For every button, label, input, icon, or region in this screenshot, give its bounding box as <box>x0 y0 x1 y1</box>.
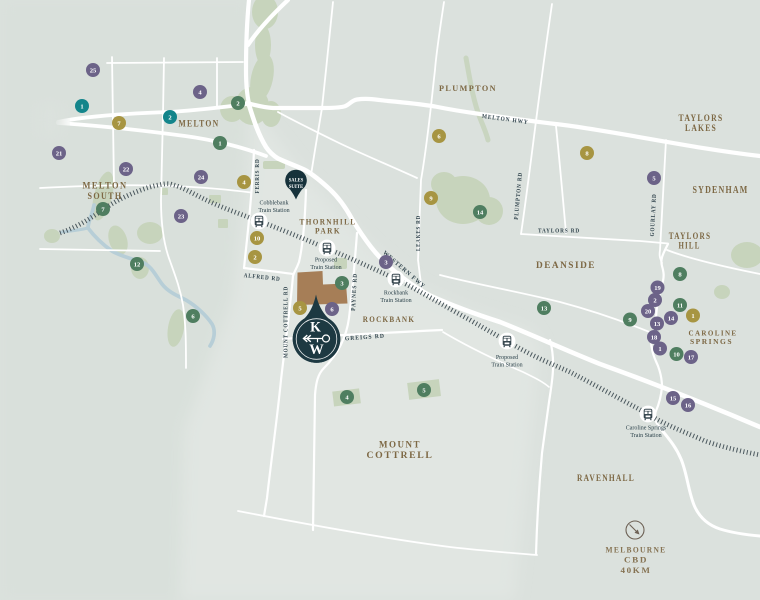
svg-text:Caroline Springs: Caroline Springs <box>626 426 667 432</box>
svg-text:40KM: 40KM <box>621 565 652 575</box>
svg-text:TAYLORS RD: TAYLORS RD <box>538 229 580 235</box>
svg-text:SYDENHAM: SYDENHAM <box>693 185 749 196</box>
svg-text:Proposed: Proposed <box>315 258 337 264</box>
svg-text:23: 23 <box>178 214 185 221</box>
svg-text:LEAKES RD: LEAKES RD <box>416 215 422 251</box>
svg-text:10: 10 <box>254 236 261 243</box>
svg-text:Train Station: Train Station <box>491 363 522 369</box>
svg-text:20: 20 <box>645 309 652 316</box>
svg-text:10: 10 <box>673 352 680 359</box>
svg-text:Proposed: Proposed <box>496 355 518 361</box>
svg-text:Train Station: Train Station <box>380 298 411 304</box>
svg-text:1: 1 <box>218 141 221 148</box>
svg-text:MELTON: MELTON <box>83 181 128 191</box>
svg-text:MELTON: MELTON <box>179 119 220 129</box>
svg-text:ROCKBANK: ROCKBANK <box>363 315 416 324</box>
svg-text:21: 21 <box>56 151 63 158</box>
svg-text:W: W <box>309 342 324 358</box>
svg-text:THORNHILL: THORNHILL <box>300 218 357 227</box>
svg-text:MOUNT: MOUNT <box>379 440 421 450</box>
svg-text:24: 24 <box>198 175 205 182</box>
svg-text:MELBOURNE: MELBOURNE <box>606 545 667 555</box>
svg-text:13: 13 <box>541 306 548 313</box>
svg-text:FERRIS RD: FERRIS RD <box>255 159 261 194</box>
svg-text:SALES: SALES <box>289 179 304 184</box>
svg-text:SPRINGS: SPRINGS <box>690 337 733 346</box>
svg-text:18: 18 <box>651 335 658 342</box>
svg-text:14: 14 <box>477 210 484 217</box>
svg-text:SOUTH: SOUTH <box>88 191 123 201</box>
svg-text:19: 19 <box>654 285 661 292</box>
svg-text:DEANSIDE: DEANSIDE <box>536 260 596 270</box>
svg-text:12: 12 <box>134 262 141 269</box>
svg-text:Rockbank: Rockbank <box>384 291 408 297</box>
svg-text:1: 1 <box>691 313 694 320</box>
svg-text:17: 17 <box>688 355 695 362</box>
svg-text:1: 1 <box>658 346 661 353</box>
svg-text:1: 1 <box>80 104 83 111</box>
svg-text:CBD: CBD <box>624 555 648 565</box>
svg-text:13: 13 <box>654 321 661 328</box>
svg-text:TAYLORS: TAYLORS <box>679 113 724 123</box>
svg-text:LAKES: LAKES <box>685 123 717 133</box>
svg-text:15: 15 <box>670 396 677 403</box>
svg-text:14: 14 <box>668 316 675 323</box>
svg-text:TAYLORS: TAYLORS <box>669 231 712 241</box>
svg-text:11: 11 <box>677 303 683 310</box>
svg-text:RAVENHALL: RAVENHALL <box>577 473 635 483</box>
svg-text:Train Station: Train Station <box>310 265 341 271</box>
svg-text:Cobblebank: Cobblebank <box>260 201 289 207</box>
svg-text:MOUNT COTTRELL RD: MOUNT COTTRELL RD <box>284 286 290 358</box>
svg-text:HILL: HILL <box>679 241 701 251</box>
svg-text:K: K <box>310 320 321 336</box>
svg-text:PARK: PARK <box>315 227 341 236</box>
svg-text:22: 22 <box>123 167 130 174</box>
svg-text:PLUMPTON: PLUMPTON <box>439 83 497 93</box>
svg-text:Train Station: Train Station <box>630 433 661 439</box>
svg-text:16: 16 <box>685 403 692 410</box>
svg-text:25: 25 <box>90 68 97 75</box>
svg-text:SUITE: SUITE <box>289 185 304 190</box>
svg-text:COTTRELL: COTTRELL <box>367 450 434 460</box>
svg-text:Train Station: Train Station <box>258 208 289 214</box>
